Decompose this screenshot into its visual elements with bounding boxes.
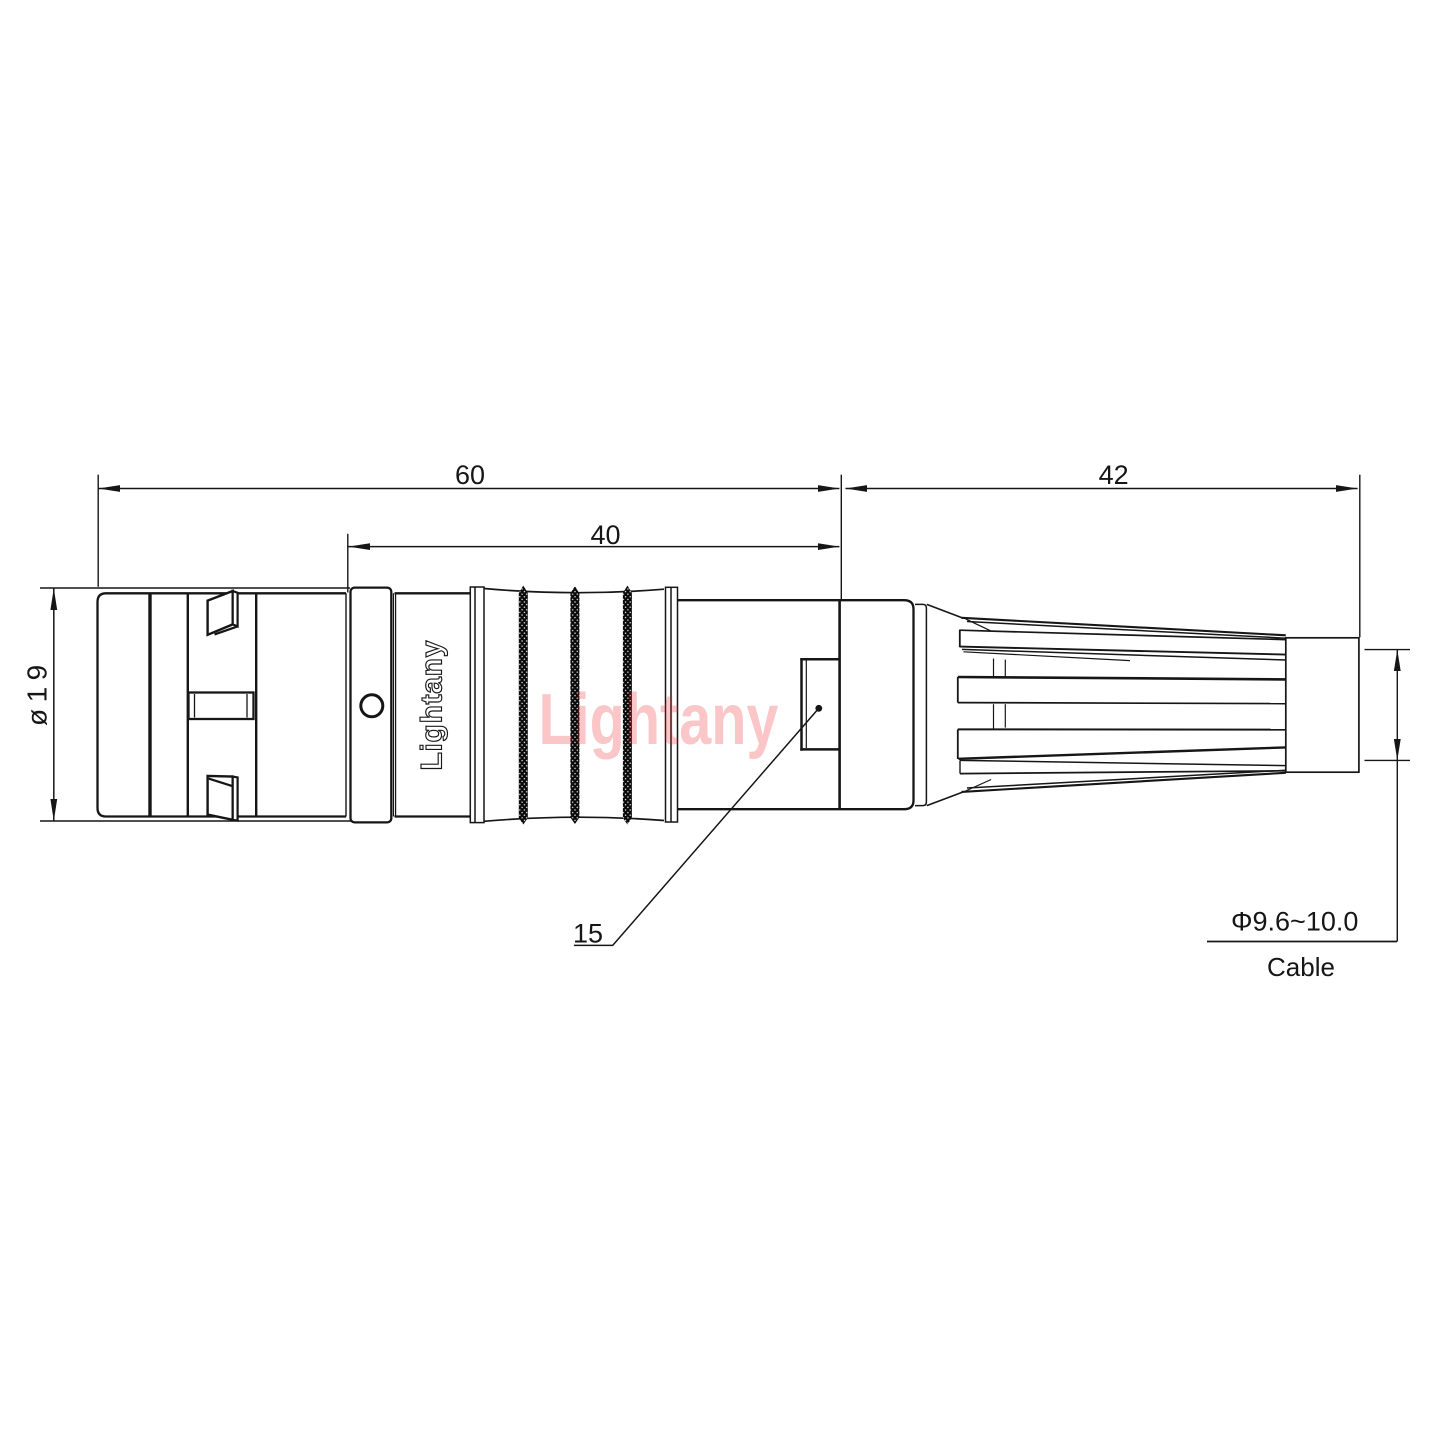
svg-text:Lightany: Lightany	[539, 679, 779, 760]
svg-text:42: 42	[1099, 460, 1129, 490]
svg-text:15: 15	[573, 919, 603, 949]
svg-text:40: 40	[590, 520, 620, 550]
svg-text:Cable: Cable	[1267, 952, 1335, 982]
svg-text:Φ9.6~10.0: Φ9.6~10.0	[1231, 907, 1358, 937]
svg-text:60: 60	[455, 460, 485, 490]
svg-text:Lightany: Lightany	[416, 640, 449, 771]
svg-text:ø19: ø19	[22, 658, 53, 726]
